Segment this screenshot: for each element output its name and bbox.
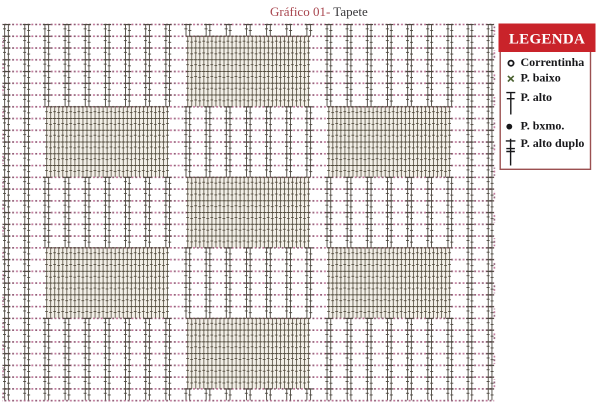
svg-text:Gráfico 01- Tapete: Gráfico 01- Tapete: [270, 4, 368, 19]
svg-text:Correntinha: Correntinha: [521, 55, 585, 69]
svg-text:LEGENDA: LEGENDA: [509, 31, 585, 47]
svg-text:P. alto duplo: P. alto duplo: [521, 136, 585, 150]
svg-text:P. alto: P. alto: [521, 90, 553, 104]
svg-text:P. baixo: P. baixo: [521, 71, 561, 85]
svg-text:P. bxmo.: P. bxmo.: [521, 118, 565, 132]
